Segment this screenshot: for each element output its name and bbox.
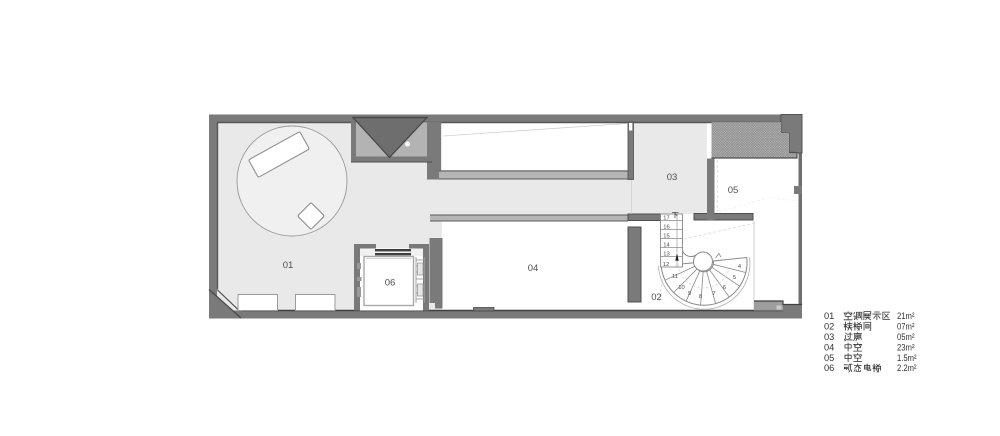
svg-text:12: 12: [663, 262, 669, 268]
svg-text:07m²: 07m²: [897, 321, 915, 331]
svg-text:6: 6: [723, 285, 726, 291]
svg-text:06: 06: [824, 363, 834, 373]
svg-text:05: 05: [728, 185, 739, 196]
svg-text:11: 11: [672, 274, 678, 280]
svg-text:2.2m²: 2.2m²: [897, 363, 917, 373]
svg-text:10: 10: [678, 285, 684, 291]
svg-text:01: 01: [824, 311, 834, 321]
svg-text:13: 13: [663, 252, 669, 258]
svg-text:17: 17: [663, 216, 669, 222]
svg-text:8: 8: [699, 294, 702, 300]
svg-text:5: 5: [733, 275, 736, 281]
svg-text:23m²: 23m²: [897, 342, 915, 352]
svg-text:1.5m²: 1.5m²: [897, 353, 917, 363]
svg-text:06: 06: [385, 278, 396, 289]
svg-text:03: 03: [824, 332, 834, 342]
svg-text:01: 01: [283, 260, 294, 271]
svg-text:7: 7: [712, 291, 715, 297]
svg-text:21m²: 21m²: [897, 311, 915, 321]
svg-text:14: 14: [663, 243, 670, 249]
svg-text:16: 16: [663, 225, 669, 231]
svg-text:15: 15: [663, 234, 669, 240]
svg-text:04: 04: [528, 263, 539, 274]
svg-text:02: 02: [824, 321, 834, 331]
svg-text:02: 02: [651, 292, 662, 303]
svg-text:05: 05: [824, 353, 834, 363]
svg-text:04: 04: [824, 342, 834, 352]
svg-text:05m²: 05m²: [897, 332, 915, 342]
svg-text:9: 9: [688, 291, 691, 297]
svg-text:03: 03: [667, 172, 678, 183]
